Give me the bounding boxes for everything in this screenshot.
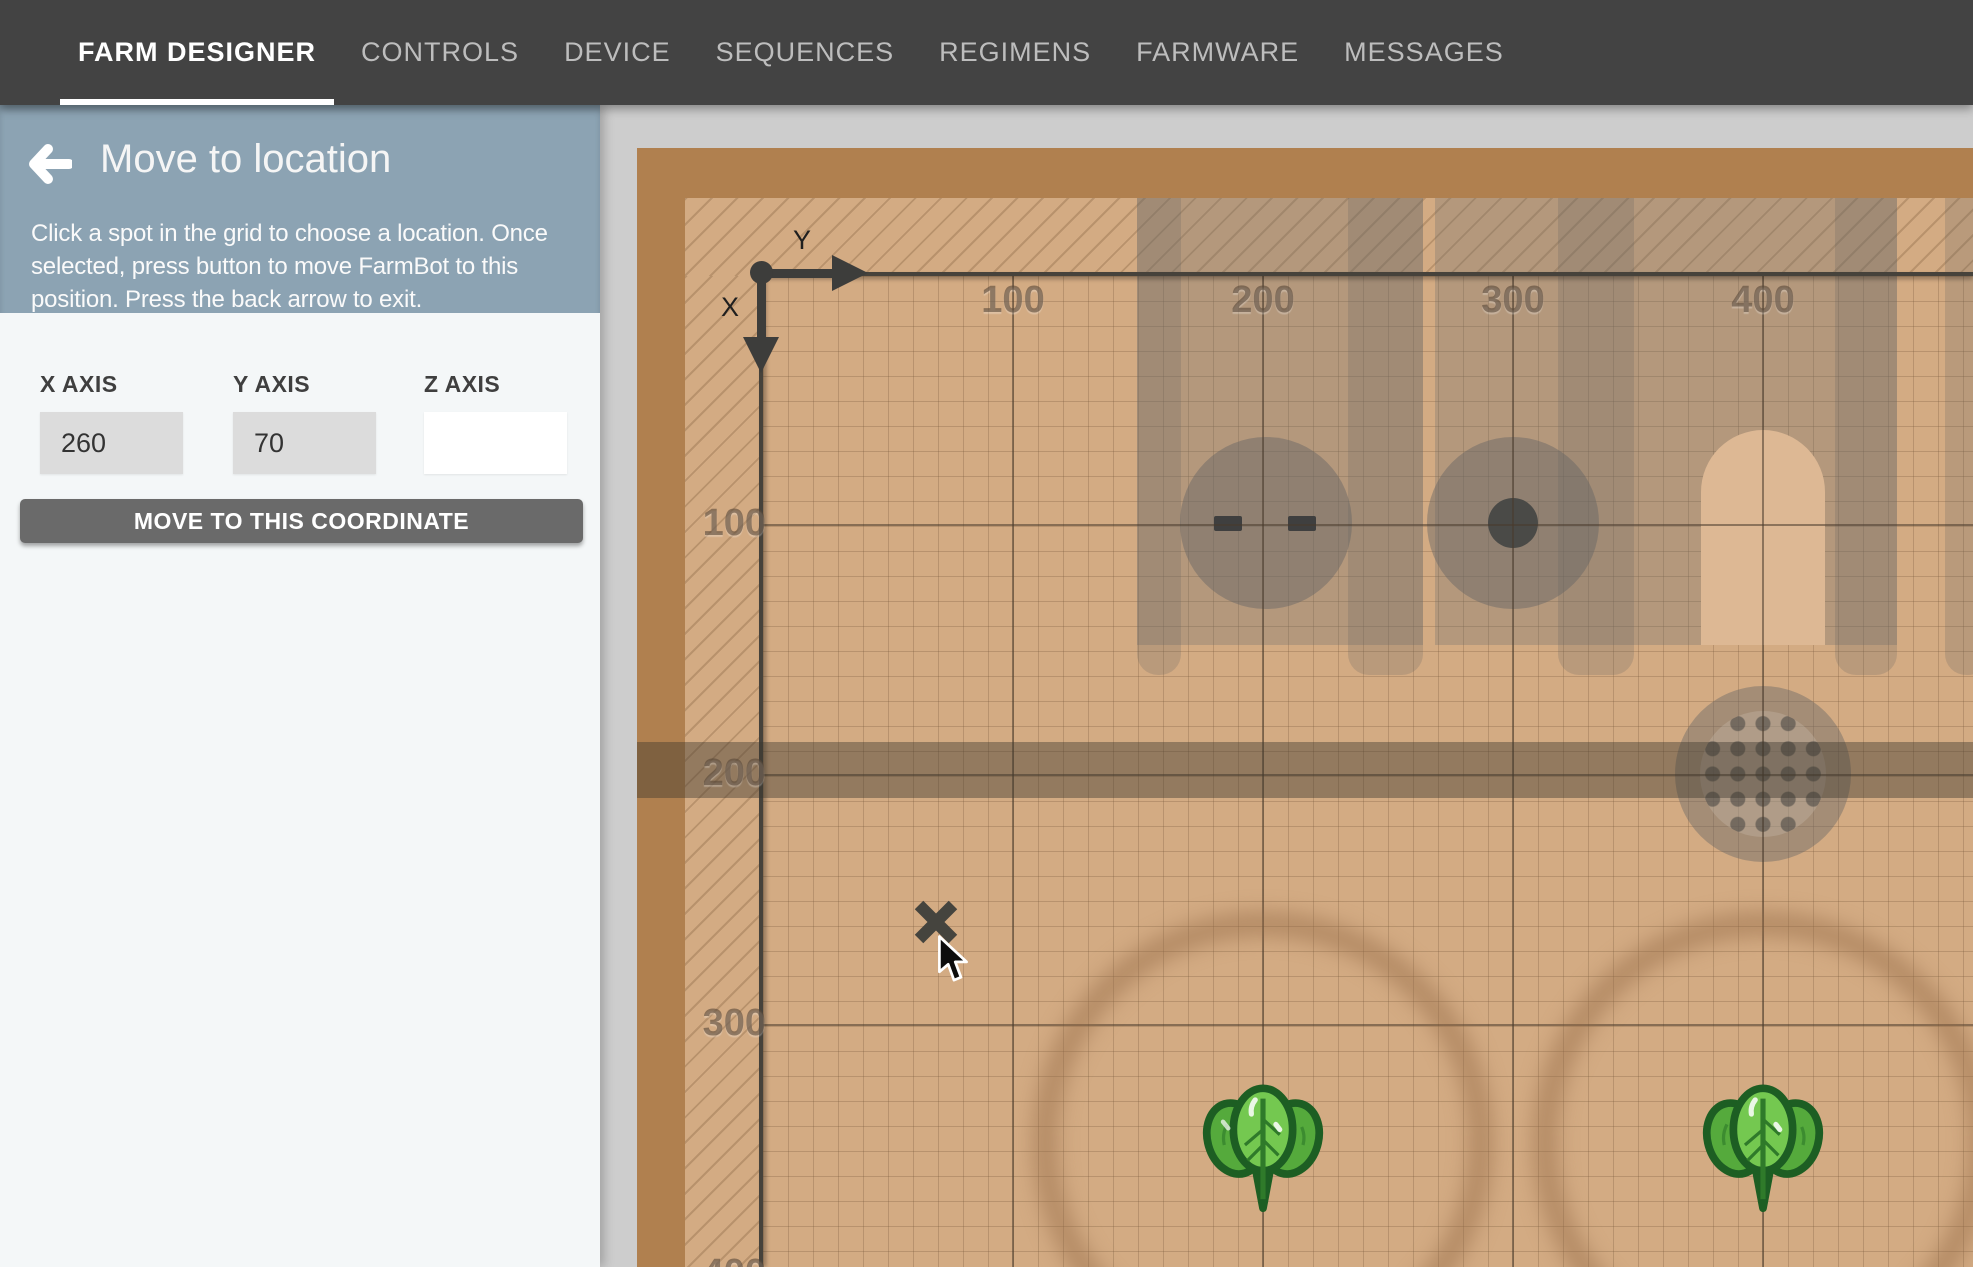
farmbot-app: FARM DESIGNER CONTROLS DEVICE SEQUENCES … bbox=[0, 0, 1973, 1267]
nav-item-controls[interactable]: CONTROLS bbox=[343, 0, 537, 105]
toolbay-slot-column bbox=[1348, 198, 1423, 675]
y-axis-arrowhead-icon bbox=[832, 255, 868, 291]
gridline-x-100 bbox=[763, 524, 1973, 526]
mouse-cursor-icon bbox=[937, 935, 969, 983]
gantry-bar bbox=[637, 742, 1973, 798]
grid-label-x-300: 300 bbox=[676, 1002, 766, 1045]
z-axis-input[interactable] bbox=[424, 412, 567, 474]
nav-item-sequences[interactable]: SEQUENCES bbox=[698, 0, 913, 105]
y-axis-label: Y AXIS bbox=[233, 371, 310, 398]
back-arrow-icon[interactable] bbox=[28, 143, 72, 187]
move-to-coordinate-button[interactable]: MOVE TO THIS COORDINATE bbox=[20, 499, 583, 543]
top-nav: FARM DESIGNER CONTROLS DEVICE SEQUENCES … bbox=[0, 0, 1973, 105]
grid-label-y-300: 300 bbox=[1448, 279, 1578, 322]
y-axis-letter: Y bbox=[793, 225, 811, 256]
toolbay-slot-column bbox=[1137, 198, 1181, 675]
x-axis-input[interactable] bbox=[40, 412, 183, 474]
tool-slot-seeder bbox=[1180, 437, 1352, 609]
grid-label-x-200: 200 bbox=[676, 752, 766, 795]
toolbay-slot-column bbox=[1945, 198, 1973, 675]
grid-label-y-200: 200 bbox=[1198, 279, 1328, 322]
grid-label-x-400: 400 bbox=[676, 1252, 766, 1267]
panel-title: Move to location bbox=[100, 137, 391, 182]
x-axis-arrowhead-icon bbox=[743, 337, 779, 373]
origin-marker bbox=[750, 261, 773, 284]
panel-header: Move to location Click a spot in the gri… bbox=[0, 105, 600, 313]
grid-label-y-400: 400 bbox=[1698, 279, 1828, 322]
grid-label-y-100: 100 bbox=[948, 279, 1078, 322]
toolbay-slot-column bbox=[1835, 198, 1897, 675]
nav-item-device[interactable]: DEVICE bbox=[546, 0, 689, 105]
y-axis-arrow bbox=[770, 269, 832, 278]
nav-item-farmware[interactable]: FARMWARE bbox=[1118, 0, 1317, 105]
z-axis-label: Z AXIS bbox=[424, 371, 500, 398]
grid-label-x-100: 100 bbox=[676, 502, 766, 545]
panel-description: Click a spot in the grid to choose a loc… bbox=[31, 217, 587, 316]
nav-item-messages[interactable]: MESSAGES bbox=[1326, 0, 1522, 105]
grid-border-y-axis bbox=[759, 272, 1973, 276]
nav-item-regimens[interactable]: REGIMENS bbox=[921, 0, 1109, 105]
plant-icon[interactable] bbox=[1698, 1078, 1828, 1212]
toolbay-slot-column bbox=[1558, 198, 1634, 675]
x-axis-label: X AXIS bbox=[40, 371, 118, 398]
x-axis-letter: X bbox=[721, 292, 739, 323]
nav-item-farm-designer[interactable]: FARM DESIGNER bbox=[60, 0, 334, 105]
garden-map[interactable]: Y X 100 200 300 400 100 200 300 400 bbox=[600, 103, 1973, 1267]
y-axis-input[interactable] bbox=[233, 412, 376, 474]
plant-icon[interactable] bbox=[1198, 1078, 1328, 1212]
move-to-location-panel: Move to location Click a spot in the gri… bbox=[0, 105, 600, 1267]
x-axis-arrow bbox=[757, 279, 766, 337]
